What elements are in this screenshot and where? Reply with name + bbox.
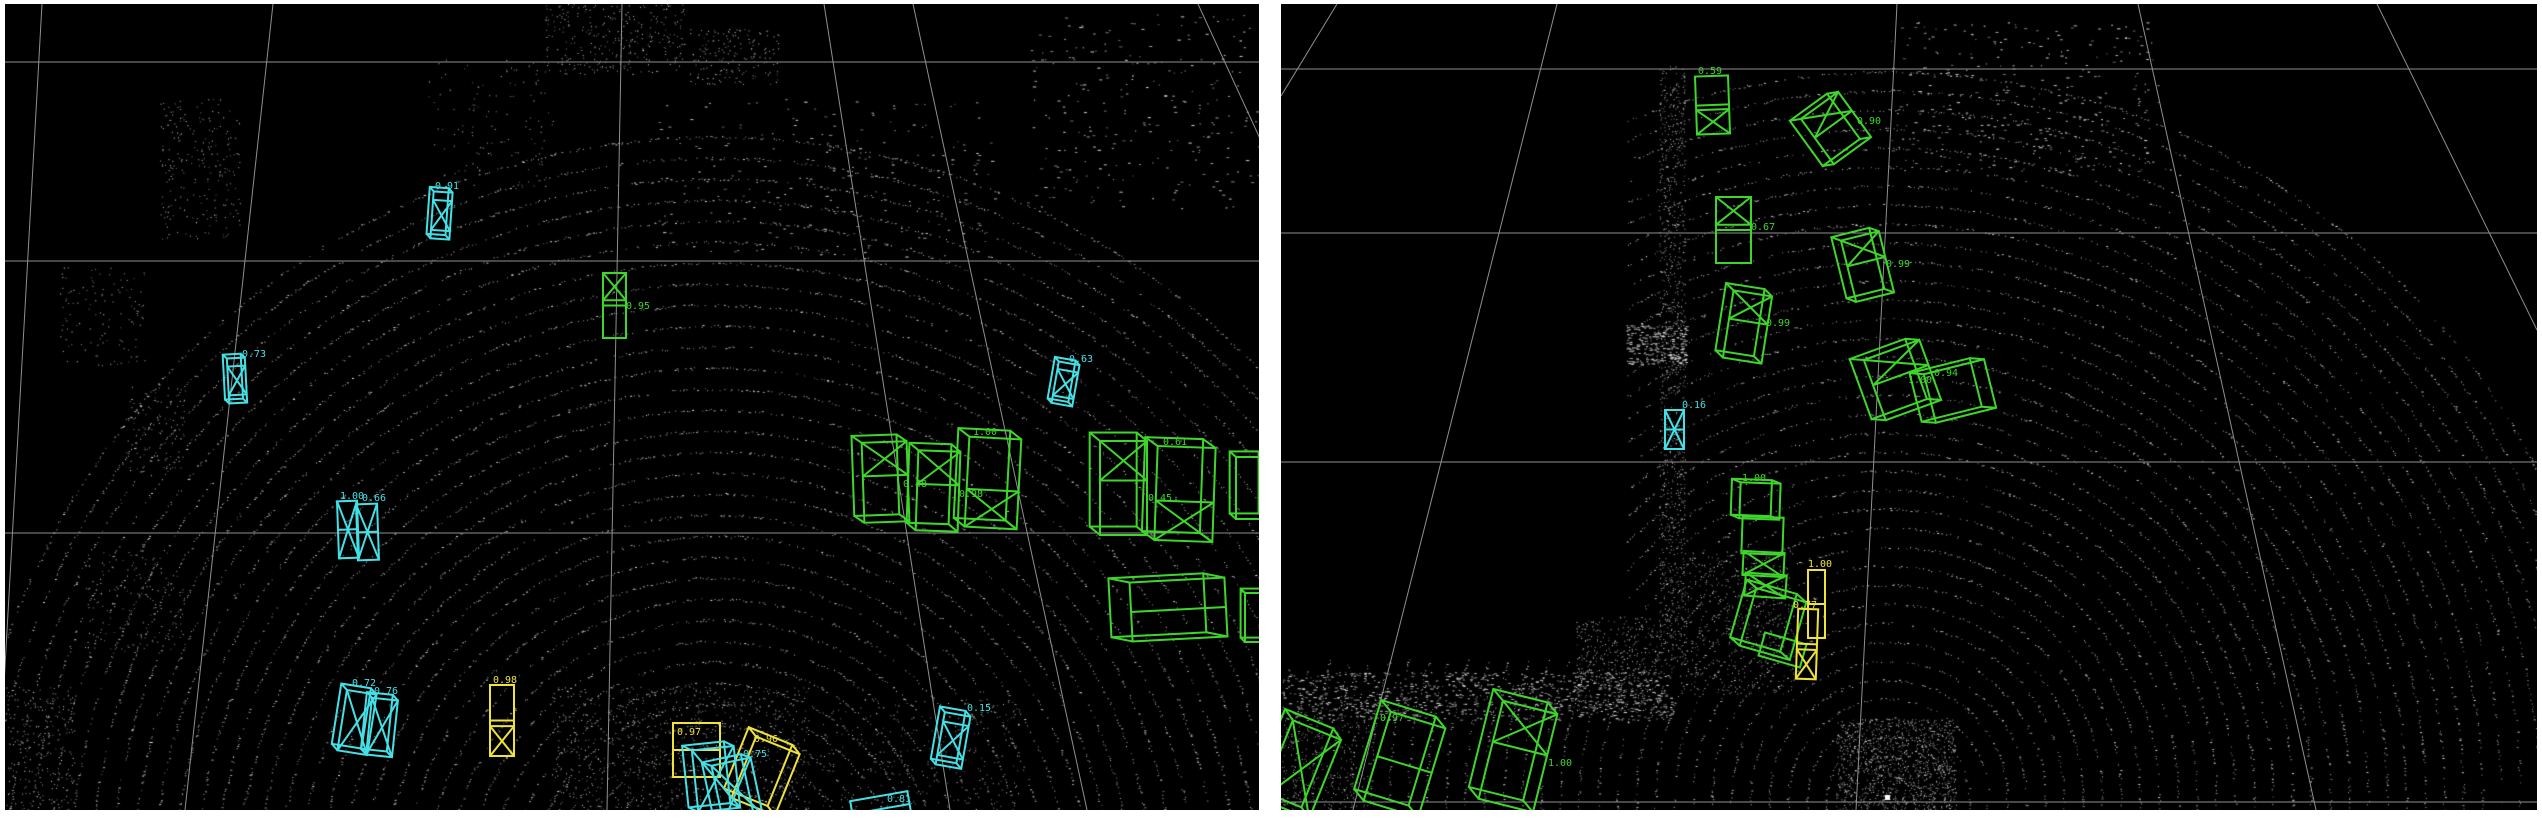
grid-line-perspective: [913, 4, 1087, 810]
grid-line-perspective: [5, 4, 42, 810]
confidence-score-label: 0.96: [754, 734, 778, 745]
confidence-score-label: 0.61: [1163, 437, 1187, 448]
left-panel-viewport[interactable]: 0.910.730.951.000.660.720.760.980.970.96…: [5, 4, 1259, 810]
grid-line-perspective: [2377, 4, 2537, 330]
detection-box-pedestrian: [1665, 410, 1684, 449]
confidence-score-label: 0.98: [493, 675, 517, 686]
detection-box-vehicle: [1790, 88, 1871, 170]
confidence-score-label: 0.90: [1857, 116, 1881, 127]
grid-line-perspective: [1198, 4, 1259, 182]
detection-box-vehicle: [1695, 75, 1730, 134]
lidar-detection-figure: 0.910.730.951.000.660.720.760.980.970.96…: [0, 0, 2542, 820]
grid-line-perspective: [824, 4, 950, 810]
grid-line-perspective: [1353, 4, 1557, 810]
detection-box-vehicle: [851, 434, 909, 523]
confidence-score-label: 0.75: [743, 749, 767, 760]
right-overlay-svg: 0.590.900.670.990.991.000.940.161.001.00…: [1281, 4, 2537, 810]
confidence-score-label: 1.00: [1742, 473, 1766, 484]
confidence-score-label: 0.67: [1751, 222, 1775, 233]
detection-box-vehicle: [1831, 226, 1894, 304]
grid-line-perspective: [1281, 4, 1337, 96]
detection-box-vehicle: [1241, 589, 1259, 642]
detection-box-vehicle: [1731, 479, 1781, 520]
detection-box-vehicle: [1090, 433, 1147, 535]
confidence-score-label: 0.94: [1934, 368, 1958, 379]
detection-box-vehicle: [1467, 689, 1560, 810]
confidence-score-label: 0.99: [1886, 259, 1910, 270]
detection-box-cyclist: [490, 685, 514, 756]
confidence-score-label: 0.95: [626, 301, 650, 312]
confidence-score-label: 0.15: [967, 703, 991, 714]
confidence-score-label: 0.45: [1148, 493, 1172, 504]
confidence-score-label: 0.91: [435, 181, 459, 192]
confidence-score-label: 0.76: [374, 686, 398, 697]
detection-box-vehicle: [1230, 451, 1259, 519]
detection-box-pedestrian: [930, 706, 971, 768]
detection-box-pedestrian: [426, 187, 453, 240]
detection-box-vehicle: [1714, 283, 1773, 364]
right-panel-viewport[interactable]: 0.590.900.670.990.991.000.940.161.001.00…: [1281, 4, 2537, 810]
detection-box-vehicle: [953, 428, 1021, 529]
confidence-score-label: 0.97: [1380, 713, 1404, 724]
confidence-score-label: 0.81: [887, 794, 911, 805]
confidence-score-label: 0.66: [362, 493, 386, 504]
confidence-score-label: 0.99: [1766, 318, 1790, 329]
confidence-score-label: 0.77: [1793, 600, 1817, 611]
confidence-score-label: 0.73: [242, 349, 266, 360]
grid-line-perspective: [185, 4, 273, 810]
detection-box-pedestrian: [223, 354, 247, 404]
confidence-score-label: 0.63: [1069, 354, 1093, 365]
detection-box-vehicle: [1281, 709, 1344, 810]
confidence-score-label: 1.00: [1548, 758, 1572, 769]
grid-line-perspective: [2138, 4, 2316, 810]
detection-box-vehicle: [1741, 516, 1783, 554]
confidence-score-label: 0.97: [677, 727, 701, 738]
confidence-score-label: 0.16: [1682, 400, 1706, 411]
confidence-score-label: 1.00: [340, 491, 364, 502]
grid-line-perspective: [607, 4, 622, 810]
confidence-score-label: 1.00: [973, 427, 997, 438]
detection-box-vehicle: [1108, 572, 1227, 642]
confidence-score-label: 1.00: [1808, 559, 1832, 570]
detection-box-vehicle: [1716, 197, 1751, 263]
detection-box-vehicle: [603, 273, 626, 338]
left-overlay-svg: 0.910.730.951.000.660.720.760.980.970.96…: [5, 4, 1259, 810]
detection-box-vehicle: [1142, 437, 1216, 542]
confidence-score-label: 0.72: [352, 678, 376, 689]
confidence-score-label: 0.59: [1698, 66, 1722, 77]
